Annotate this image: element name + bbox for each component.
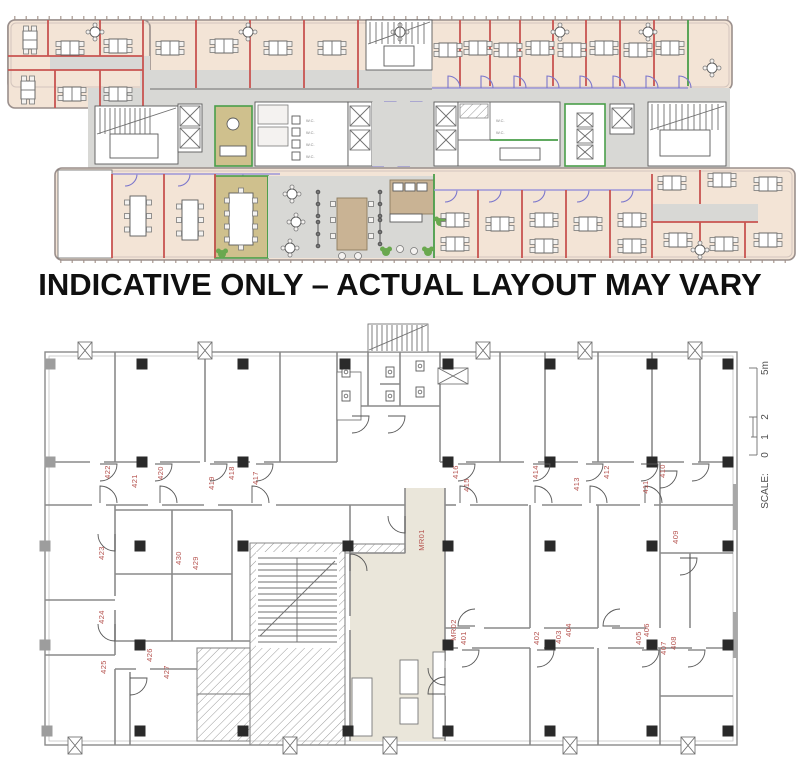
svg-text:429: 429 [191, 556, 200, 570]
svg-text:403: 403 [554, 630, 563, 644]
svg-text:W.C.: W.C. [306, 142, 315, 147]
lift-lobby [372, 102, 434, 166]
wc-block [458, 102, 560, 166]
svg-text:430: 430 [174, 551, 183, 565]
svg-text:407: 407 [659, 641, 668, 655]
svg-text:415: 415 [462, 478, 471, 492]
svg-text:W.C.: W.C. [306, 118, 315, 123]
svg-text:423: 423 [97, 546, 106, 560]
svg-text:1: 1 [760, 434, 771, 440]
svg-text:W.C.: W.C. [496, 130, 505, 135]
floor-plan-page: { "banner": { "text": "INDICATIVE ONLY –… [0, 0, 800, 768]
svg-text:409: 409 [671, 530, 680, 544]
svg-text:425: 425 [99, 660, 108, 674]
svg-text:427: 427 [162, 665, 171, 679]
svg-text:417: 417 [251, 471, 260, 485]
svg-text:0: 0 [760, 452, 771, 458]
technical-floor-plan: 4224214204194184174164154144134124114104… [0, 316, 800, 768]
svg-text:404: 404 [564, 623, 573, 637]
meeting-room [215, 106, 252, 166]
svg-text:MR01: MR01 [417, 529, 426, 551]
svg-text:421: 421 [130, 474, 139, 488]
svg-text:422: 422 [103, 465, 112, 479]
svg-text:2: 2 [760, 414, 771, 420]
svg-text:411: 411 [641, 480, 650, 493]
svg-text:414: 414 [531, 465, 540, 479]
svg-text:413: 413 [572, 477, 581, 491]
staircase-icon [648, 102, 726, 166]
indicative-floor-plan: W.C.W.C.W.C.W.C.W.C.W.C. [0, 8, 800, 264]
svg-text:401: 401 [459, 631, 468, 645]
corner-room [58, 170, 112, 258]
disclaimer-banner: INDICATIVE ONLY – ACTUAL LAYOUT MAY VARY [0, 267, 800, 303]
svg-text:410: 410 [658, 464, 667, 478]
svg-text:W.C.: W.C. [306, 130, 315, 135]
svg-text:408: 408 [669, 636, 678, 650]
svg-text:W.C.: W.C. [496, 118, 505, 123]
svg-text:5m: 5m [760, 361, 771, 375]
svg-text:418: 418 [227, 466, 236, 480]
svg-text:424: 424 [97, 610, 106, 624]
scale-bar: 0125mSCALE: [749, 361, 771, 509]
svg-text:SCALE:: SCALE: [760, 473, 771, 509]
svg-text:406: 406 [642, 623, 651, 637]
disclaimer-text: INDICATIVE ONLY – ACTUAL LAYOUT MAY VARY [38, 267, 761, 302]
svg-text:420: 420 [156, 466, 165, 480]
staircase-icon [95, 106, 178, 164]
svg-text:416: 416 [451, 465, 460, 479]
svg-text:419: 419 [207, 476, 216, 490]
svg-text:402: 402 [532, 631, 541, 645]
svg-text:MR02: MR02 [449, 619, 458, 641]
svg-text:W.C.: W.C. [306, 154, 315, 159]
svg-text:412: 412 [602, 465, 611, 479]
svg-text:426: 426 [145, 648, 154, 662]
